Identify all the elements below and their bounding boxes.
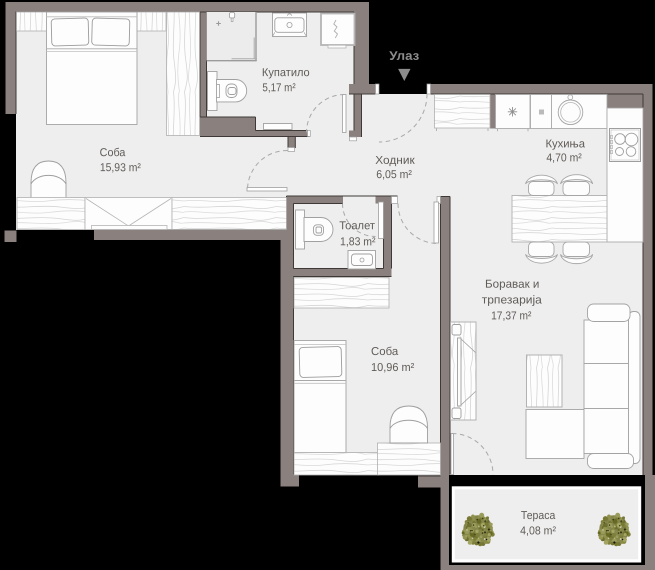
svg-text:Улаз: Улаз [389,49,419,63]
svg-text:Боравак и: Боравак и [485,279,539,291]
svg-text:4,70 m²: 4,70 m² [546,152,582,164]
svg-text:Купатило: Купатило [262,67,310,79]
svg-text:5,17 m²: 5,17 m² [262,82,295,94]
svg-text:4,08 m²: 4,08 m² [520,525,556,537]
svg-text:17,37 m²: 17,37 m² [491,310,531,322]
svg-text:6,05 m²: 6,05 m² [376,169,412,181]
svg-text:Тераса: Тераса [521,510,556,522]
svg-text:Соба: Соба [100,147,126,159]
svg-text:Ходник: Ходник [375,155,415,167]
svg-text:Тоалет: Тоалет [339,220,376,232]
svg-text:Кухиња: Кухиња [545,138,585,150]
svg-text:15,93 m²: 15,93 m² [100,162,141,174]
svg-text:Соба: Соба [371,346,399,358]
svg-text:1,83 m²: 1,83 m² [340,236,376,248]
svg-text:10,96 m²: 10,96 m² [371,362,414,374]
svg-text:трпезарија: трпезарија [482,294,543,306]
